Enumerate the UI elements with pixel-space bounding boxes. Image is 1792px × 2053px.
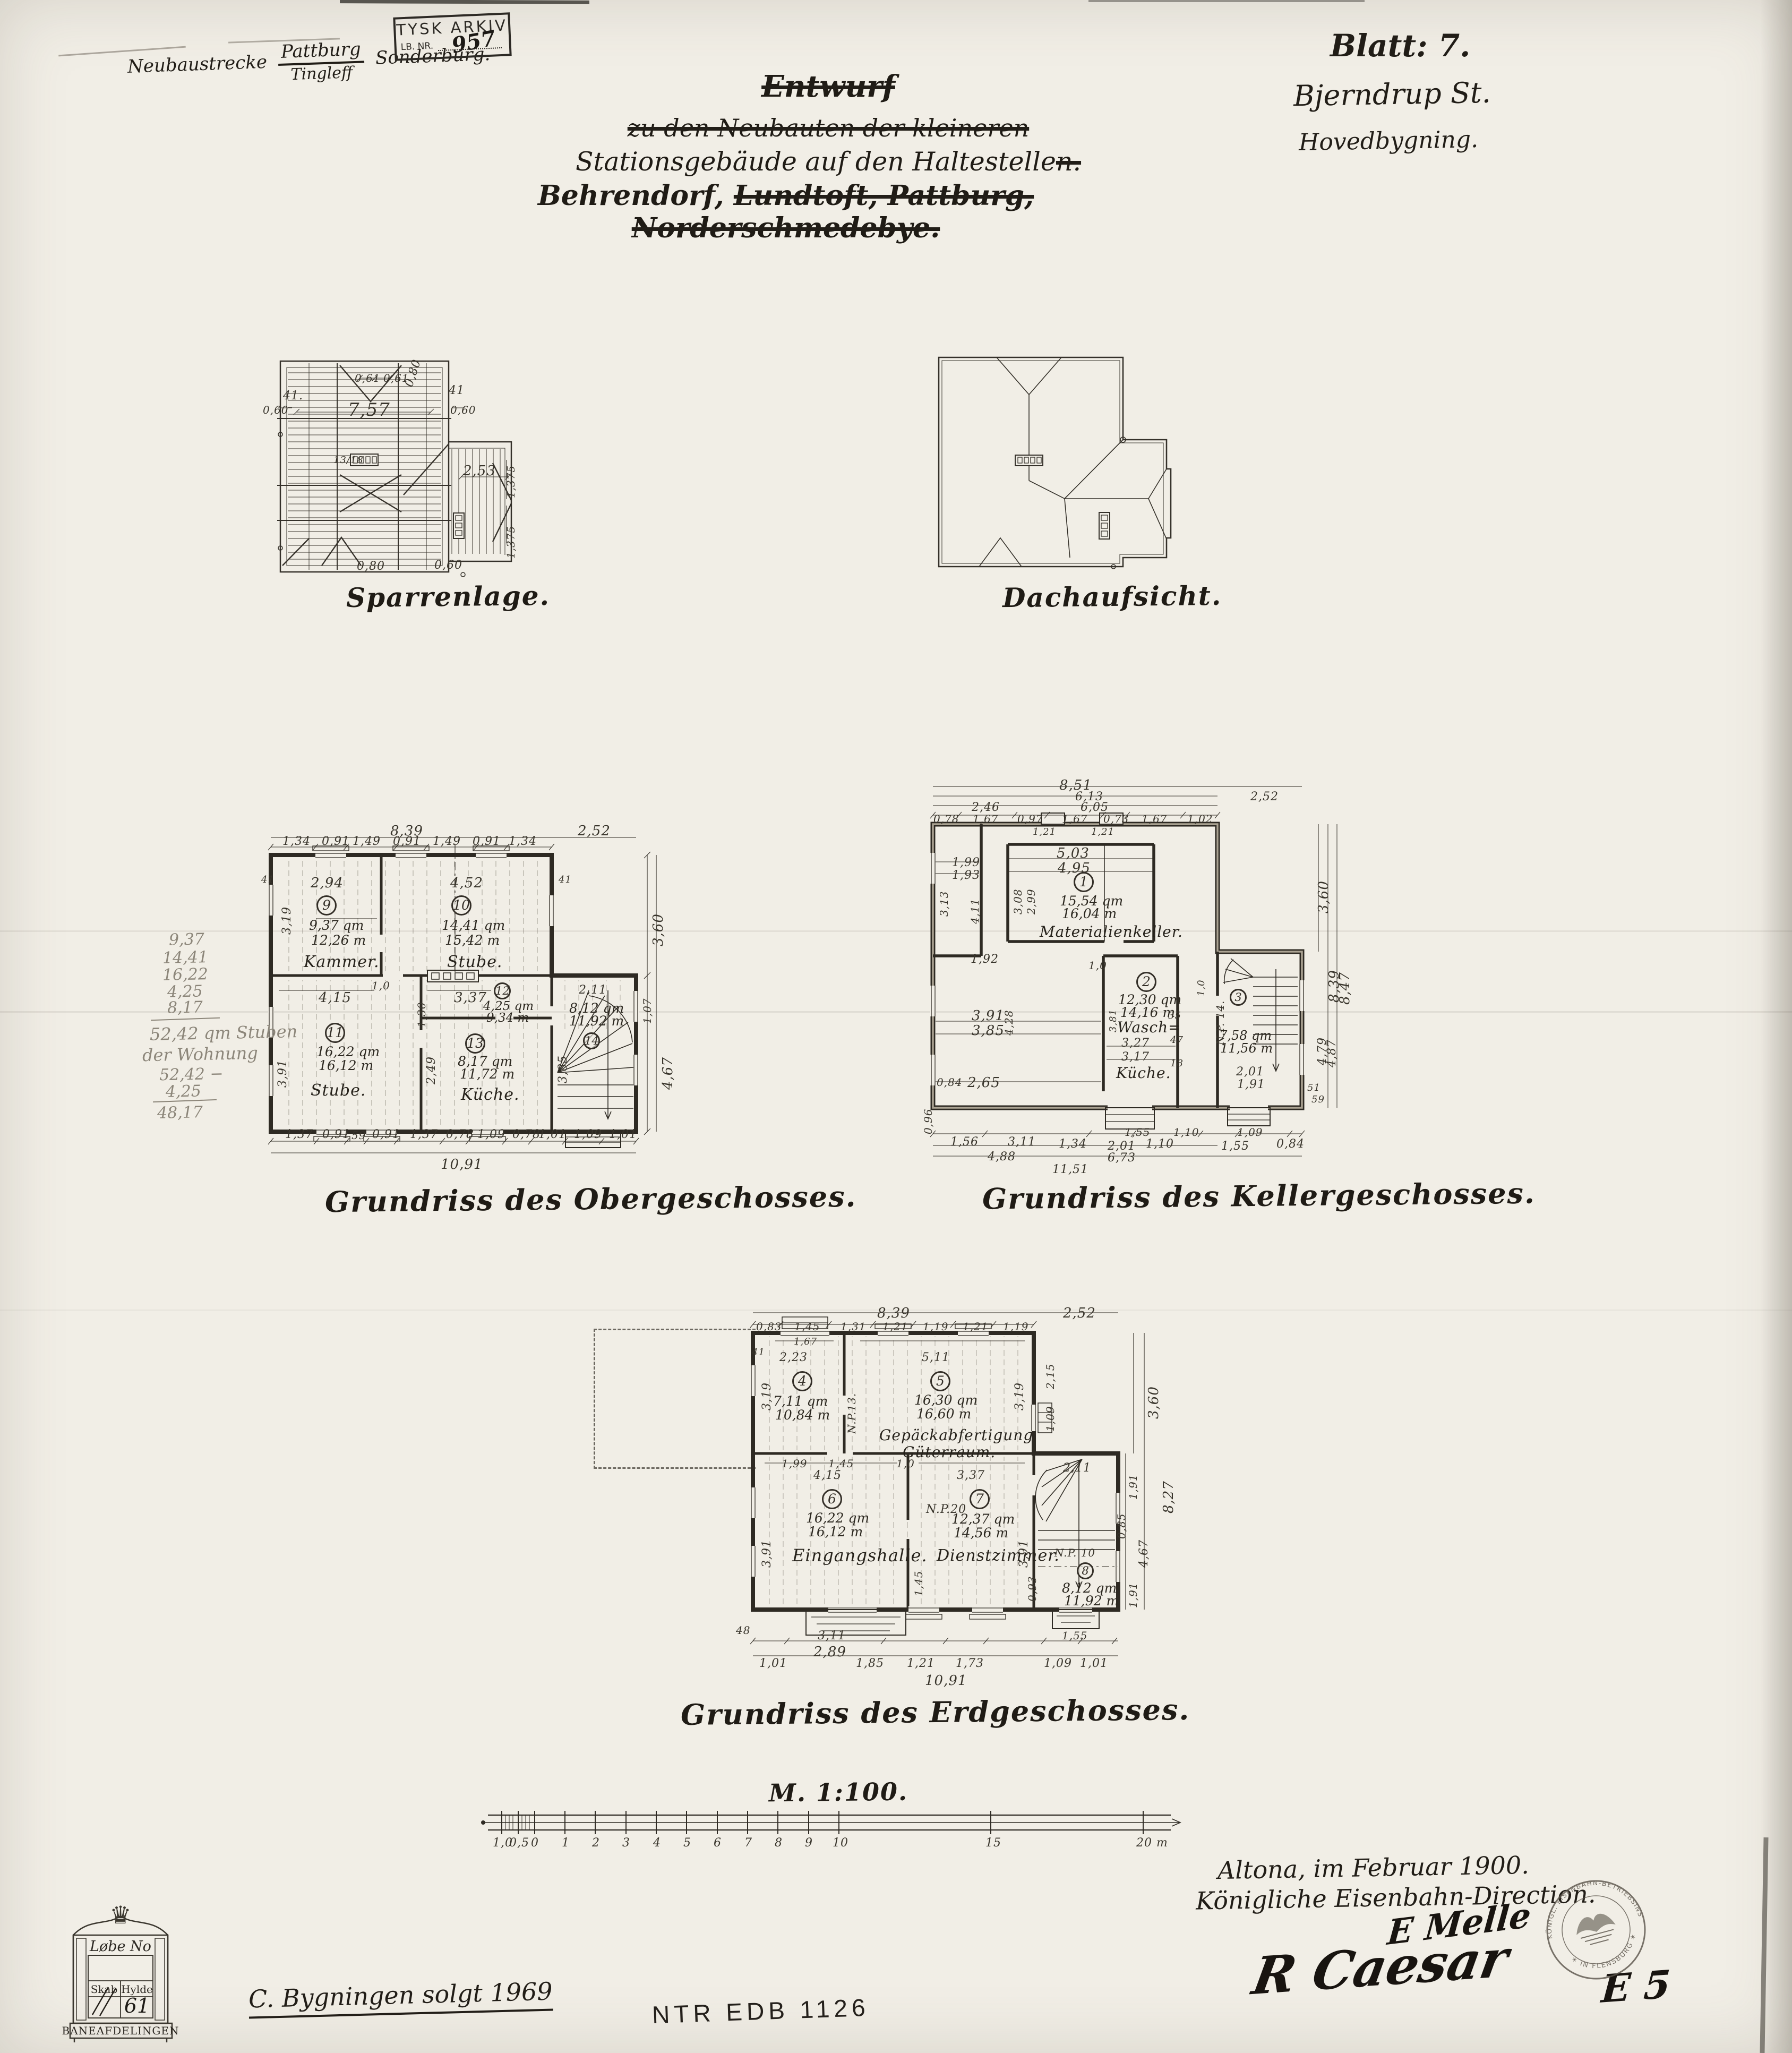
dim-label: 10,91 <box>925 1673 967 1689</box>
room-number: 2 <box>1136 972 1156 992</box>
room-area: 7,11 qm <box>773 1393 828 1409</box>
room-perimeter: 11,92 m <box>1064 1593 1119 1609</box>
dim-label: 2,01 <box>1236 1065 1264 1079</box>
room-name: Küche. <box>461 1085 520 1104</box>
dim-label: 3,81 <box>1108 1009 1119 1032</box>
room-perimeter: 16,60 m <box>916 1406 971 1422</box>
dim-label: 41 <box>559 874 572 885</box>
dim-label: 59 <box>1311 1094 1325 1105</box>
dim-label: 1,09 <box>574 1128 602 1141</box>
dim-label: 1,91 <box>1127 1474 1139 1500</box>
scale-tick: 20 m <box>1136 1836 1168 1850</box>
dim-label: 51 <box>1307 1082 1321 1093</box>
dim-label: 1,10 <box>1146 1137 1174 1151</box>
room-number: 12 <box>494 982 511 999</box>
room-name: Materialienkeller. <box>1040 923 1183 940</box>
dim-label: 0,78 <box>512 1128 541 1141</box>
stamp-text-bottom: ✶ IN FLENSBURG ✶ <box>1566 1930 1645 1978</box>
dim-label: 1,01 <box>538 1128 567 1141</box>
dim-label: 41 <box>449 384 465 397</box>
archive-stamp: TYSK ARKIV LB. NR. 957 <box>393 12 511 61</box>
room-area: 16,22 qm <box>806 1510 869 1526</box>
room-name: Stube. <box>447 953 502 971</box>
route-fraction: Pattburg Tingleff <box>277 38 365 84</box>
room-number: 14 <box>583 1032 600 1049</box>
dim-label: 3,19 <box>1013 1382 1026 1410</box>
svg-text:KÖNIGL. EISENBAHN-BETRIEBSINSP: KÖNIGL. EISENBAHN-BETRIEBSINSPECTION <box>1528 1860 1645 1944</box>
room-name: Stube. <box>311 1081 366 1100</box>
dim-label: 0,80 <box>357 560 385 573</box>
dim-label: 1,09 <box>477 1128 505 1141</box>
dim-label: 1,01 <box>609 1128 637 1141</box>
dim-label: 4,11 <box>968 898 981 924</box>
scale-caption: M. 1:100. <box>769 1777 908 1808</box>
dim-label: 3,91 <box>972 1008 1005 1024</box>
dim-label: 1,56 <box>950 1135 979 1149</box>
title-line-3: Stationsgebäude auf den Haltestellen. <box>563 147 1094 177</box>
pencil-note: 52,42 qm Stuben <box>150 1021 298 1045</box>
dim-label: 1,55 <box>1221 1140 1249 1153</box>
pencil-rule <box>151 1017 220 1021</box>
dim-label: 0,91 <box>372 1128 400 1141</box>
dim-label: 1,0 <box>896 1457 915 1470</box>
room-perimeter: 14,16 m <box>1120 1005 1175 1020</box>
room-perimeter: 15,42 m <box>445 933 500 948</box>
dim-label: 4,87 <box>1325 1039 1339 1067</box>
dim-label: 6,73 <box>1108 1151 1136 1165</box>
scale-tick: 8 <box>775 1836 783 1850</box>
caption-dachaufsicht: Dachaufsicht. <box>1002 580 1222 613</box>
dim-label: 2,94 <box>311 875 344 891</box>
room-perimeter: 9,34 m <box>486 1011 529 1025</box>
dim-label: 2,52 <box>1063 1305 1096 1321</box>
room-number: 3 <box>1230 989 1247 1006</box>
dim-label: 0,78 <box>446 1128 474 1141</box>
room-number: 9 <box>316 895 337 916</box>
dim-label: 2,15 <box>1044 1363 1057 1389</box>
dim-label: 1,34 <box>1059 1137 1087 1151</box>
dim-label: 59 <box>351 1129 366 1142</box>
scale-tick: 10 <box>833 1836 848 1850</box>
title-neubauten: zu den Neubauten der kleineren <box>628 114 1029 142</box>
room-number: 8 <box>1077 1562 1094 1579</box>
cabinet-footer: BANEAFDELINGEN <box>62 2024 179 2037</box>
room-area: 9,37 qm <box>309 918 364 933</box>
dim-label: 3,60 <box>650 913 666 946</box>
dim-label: 0,83 <box>756 1320 782 1333</box>
dim-label: 1,21 <box>882 1320 908 1333</box>
dim-label: 5,11 <box>922 1351 950 1364</box>
dim-label: 3,37 <box>454 990 487 1006</box>
dim-label: 2,65 <box>967 1075 1000 1091</box>
np-label: N.P.13. <box>845 1393 858 1434</box>
dim-label: 1,37 <box>410 1128 438 1141</box>
dim-label: 1,45 <box>828 1457 854 1470</box>
dim-label: 1,45 <box>912 1570 925 1596</box>
dim-label: 4,15 <box>813 1469 842 1482</box>
scan-edge-top2 <box>1088 0 1365 2</box>
title-entwurf: Entwurf <box>761 69 895 104</box>
dim-label: 1,01 <box>1080 1657 1108 1670</box>
dim-label: 1,67 <box>973 812 999 825</box>
dim-label: 1,21 <box>907 1657 935 1670</box>
dachaufsicht-drawing <box>937 353 1173 571</box>
room-number: 10 <box>451 895 471 916</box>
dim-label: 3,11 <box>818 1629 846 1643</box>
route-over: Pattburg <box>277 38 364 66</box>
dim-label: 1,34 <box>282 835 311 848</box>
room-number: 5 <box>930 1371 950 1391</box>
dim-label: 0,60 <box>263 404 289 416</box>
dim-label: 13/18 <box>333 455 364 466</box>
roof-lines <box>979 357 1167 567</box>
cabinet-header: Løbe No <box>89 1938 151 1955</box>
dim-label: 4,15 <box>319 990 351 1006</box>
title-line-4: Behrendorf, Lundtoft, Pattburg, Nordersc… <box>451 179 1120 244</box>
caption-kellergeschoss: Grundriss des Kellergeschosses. <box>982 1176 1536 1216</box>
cabinet-stamp: ♛ Løbe No Skab Hylde 61 BANEAFDELINGEN <box>69 1900 175 2045</box>
dim-label: 1,67 <box>1062 812 1088 825</box>
dim-label: 3,17 <box>1121 1050 1150 1064</box>
dim-label: 18 <box>1170 1058 1184 1069</box>
dim-label: 1,0 <box>1088 959 1107 972</box>
note-sold: C. Bygningen solgt 1969 <box>248 1977 553 2014</box>
dim-label: 41. <box>283 389 303 403</box>
pencil-note: 9,37 <box>169 930 205 949</box>
dim-label: 1,91 <box>1237 1078 1265 1091</box>
dim-label: 1,45 <box>794 1320 820 1333</box>
dim-label: 10,91 <box>441 1157 483 1173</box>
scale-tick: 3 <box>622 1836 630 1850</box>
scale-tick: 6 <box>714 1836 722 1850</box>
dim-label: 1,99 <box>782 1457 808 1470</box>
pencil-note: der Wohnung <box>142 1043 259 1066</box>
dim-label: 3,19 <box>760 1382 774 1410</box>
dim-label: 4,28 <box>1002 1010 1015 1036</box>
dim-label: 1,09 <box>1044 1657 1072 1670</box>
room-number: 6 <box>822 1489 842 1509</box>
route-prefix: Neubaustrecke <box>127 52 267 78</box>
room-perimeter: 16,04 m <box>1062 906 1117 921</box>
dim-label: 1,19 <box>1003 1320 1029 1333</box>
dim-label: 8,39 <box>877 1305 910 1321</box>
dim-label: 1,10 <box>1173 1126 1199 1139</box>
dim-label: 4,67 <box>1137 1539 1151 1568</box>
room-name: Küche. <box>1116 1064 1171 1082</box>
room-name: Gepäckabfertigung <box>879 1426 1033 1444</box>
room-area: 16,30 qm <box>914 1392 978 1408</box>
room-name: Kammer. <box>304 953 380 971</box>
signature-caesar: R Caesar <box>1248 1928 1513 2006</box>
dim-label: 0,91 <box>473 835 501 848</box>
scale-tick: 0,5 <box>509 1836 529 1850</box>
dim-label: 0,61 <box>355 372 381 384</box>
dim-label: 1,02 <box>1187 812 1213 825</box>
dim-label: 0,91 <box>393 835 421 848</box>
scale-tick: 2 <box>592 1836 600 1850</box>
title-behrendorf: Behrendorf, <box>538 179 724 212</box>
dim-label: 0,84 <box>937 1076 963 1089</box>
dim-label: 0,85 <box>1115 1513 1128 1539</box>
dim-label: 8,47 <box>1337 972 1353 1005</box>
dim-label: 1,21 <box>963 1320 989 1333</box>
dim-label: 4,52 <box>450 875 483 891</box>
dim-label: 1,73 <box>956 1657 984 1670</box>
room-perimeter: 12,26 m <box>311 933 366 948</box>
stamp-text-top: KÖNIGL. EISENBAHN-BETRIEBSINSPECTION <box>1528 1860 1645 1944</box>
dim-label: 0,84 <box>1276 1137 1305 1151</box>
scale-tick: 9 <box>805 1836 813 1850</box>
dim-label: 1,93 <box>952 869 980 882</box>
scale-tick: 5 <box>683 1836 691 1850</box>
dim-label: 4,88 <box>988 1150 1016 1164</box>
dim-label: 2,53 <box>463 463 496 479</box>
dim-label: 4,67 <box>660 1057 676 1090</box>
dim-label: 3,19 <box>280 906 294 935</box>
dim-label: 2,52 <box>1250 790 1279 803</box>
dim-label: 48 <box>736 1624 750 1637</box>
room-perimeter: 16,12 m <box>319 1058 373 1073</box>
cabinet-skab: Skab <box>91 1983 118 1996</box>
dim-label: 2,89 <box>813 1644 846 1660</box>
dim-label: 0,91 <box>322 1128 350 1141</box>
dim-label: 0,93 <box>1026 1576 1039 1602</box>
scale-tick: 7 <box>744 1836 752 1850</box>
sheet-building: Hovedbygning. <box>1299 126 1479 156</box>
dim-label: 1,0 <box>1196 979 1207 996</box>
dim-label: 1,375 <box>504 465 517 498</box>
dim-label: 0,60 <box>450 404 476 416</box>
room-area: 14,41 qm <box>442 918 505 933</box>
dim-label: 3,13 <box>938 891 950 917</box>
dim-label: 3,85 <box>556 1055 570 1083</box>
archive-stamp-label: LB. NR. <box>400 41 433 53</box>
dim-label: 2,11 <box>579 983 607 997</box>
scale-tick: 1 <box>562 1836 570 1850</box>
dim-label: 1,55 <box>1062 1629 1088 1642</box>
room-number: 4 <box>792 1371 812 1391</box>
scale-tick: 4 <box>653 1836 661 1850</box>
room-name: Güterraum. <box>903 1443 996 1461</box>
scale-tick: 0 <box>531 1836 539 1850</box>
caption-erdgeschoss: Grundriss des Erdgeschosses. <box>681 1692 1190 1732</box>
cabinet-value: 61 <box>124 1994 150 2017</box>
dim-label: 1,21 <box>1033 826 1056 837</box>
dim-label: 1,09 <box>1237 1126 1263 1139</box>
room-area: 16,22 qm <box>316 1044 380 1059</box>
caption-sparrenlage: Sparrenlage. <box>346 580 550 613</box>
dim-label: 0,96 <box>922 1108 934 1134</box>
title-stationsgebaeude: Stationsgebäude auf den Haltestelle <box>576 147 1056 177</box>
sheet-station: Bjerndrup St. <box>1293 76 1491 113</box>
np-label: N.P. 10 <box>1054 1546 1095 1559</box>
dim-label: 1,375 <box>504 526 517 559</box>
crown-icon: ♛ <box>109 1901 131 1929</box>
dim-label: 1,37 <box>285 1128 313 1141</box>
dim-label: 3,60 <box>1316 880 1332 913</box>
dim-label: 11,51 <box>1052 1163 1088 1176</box>
dim-label: 0,91 <box>322 835 350 848</box>
dim-label: 1,19 <box>923 1320 949 1333</box>
dim-label: 1,49 <box>353 835 381 848</box>
dim-label: 1,99 <box>952 856 980 869</box>
dim-label: 3,08 <box>1011 888 1024 914</box>
pencil-note: 8,17 <box>167 998 203 1017</box>
room-number: 13 <box>465 1033 485 1054</box>
dim-label: 2,52 <box>578 823 611 839</box>
room-name: Dienstzimmer. <box>937 1546 1060 1565</box>
dim-label: 3,91 <box>276 1059 289 1088</box>
dim-label: 0,73 <box>1103 812 1129 825</box>
dim-label: 41 <box>752 1347 765 1358</box>
dim-label: 7,57 <box>348 399 390 421</box>
dim-label: 1,01 <box>759 1657 787 1670</box>
paper-edge-right <box>1760 0 1792 2053</box>
dim-label: 3,91 <box>1017 1539 1031 1568</box>
paper-crease-right <box>1760 1837 1768 2053</box>
dim-label: 1,34 <box>509 835 537 848</box>
dim-label: 2,11 <box>1063 1461 1091 1475</box>
dim-label: 8,27 <box>1161 1481 1177 1513</box>
dim-label: 1,67 <box>1142 812 1168 825</box>
dim-label: 3,27 <box>1121 1037 1150 1050</box>
room-number: 7 <box>970 1489 990 1509</box>
room-name: Eingangshalle. <box>792 1545 928 1566</box>
room-number: 11 <box>325 1023 345 1043</box>
room-perimeter: 11,72 m <box>460 1066 515 1082</box>
room-perimeter: 16,12 m <box>808 1524 863 1539</box>
pencil-note: 4,25 <box>166 1082 202 1101</box>
dim-label: 1,91 <box>1127 1582 1139 1608</box>
footer-place-date: Altona, im Februar 1900. <box>1217 1851 1530 1885</box>
dim-label: 1,85 <box>856 1657 884 1670</box>
dim-label: 3,91 <box>760 1539 774 1568</box>
dim-label: 3,85 <box>972 1023 1005 1039</box>
title-block: Entwurf zu den Neubauten der kleineren S… <box>563 69 1094 177</box>
dim-label: 47 <box>1170 1034 1184 1046</box>
dim-label: 2,99 <box>1025 888 1038 914</box>
pencil-note: 52,42 − <box>159 1065 224 1085</box>
dim-label: 1,21 <box>1091 826 1114 837</box>
dim-label: 0,78 <box>933 812 959 825</box>
note-sold-text: C. Bygningen solgt 1969 <box>248 1977 553 2019</box>
room-perimeter: 11,92 m <box>569 1013 624 1029</box>
dim-label: 3,37 <box>957 1469 985 1482</box>
scale-tick: 15 <box>985 1836 1001 1850</box>
dim-label: 1,0 <box>372 979 390 992</box>
dim-label: 1,09 <box>1044 1406 1057 1432</box>
dim-label: 2,23 <box>779 1351 808 1364</box>
dim-label: 35 <box>1168 1010 1181 1021</box>
title-line-2: zu den Neubauten der kleineren <box>563 114 1094 142</box>
svg-text:✶ IN FLENSBURG ✶: ✶ IN FLENSBURG ✶ <box>1566 1930 1645 1978</box>
dim-label: 1,55 <box>1125 1126 1151 1139</box>
route-under: Tingleff <box>278 63 365 84</box>
eagle-icon <box>1573 1910 1616 1937</box>
chimney <box>1015 455 1043 466</box>
room-perimeter: 11,56 m <box>1220 1041 1273 1056</box>
dim-label: 3,60 <box>1146 1386 1162 1419</box>
note-ntr: NTR EDB 1126 <box>651 1993 870 2029</box>
caption-obergeschoss: Grundriss des Obergeschosses. <box>325 1179 857 1219</box>
dim-label: 1,07 <box>641 998 654 1024</box>
title-line-1: Entwurf <box>563 69 1094 104</box>
title-stationsgebaeude-struck: n. <box>1056 147 1081 177</box>
chimney <box>427 970 478 982</box>
dim-label: 1,30 <box>415 1002 428 1028</box>
dim-label: 1,31 <box>841 1320 867 1333</box>
dim-label: 1,92 <box>971 953 999 966</box>
dim-label: 1,49 <box>433 835 461 848</box>
dim-label: 3,11 <box>1008 1135 1036 1149</box>
room-perimeter: 10,84 m <box>775 1407 830 1423</box>
room-area: 12,37 qm <box>951 1511 1015 1527</box>
drawing-sheet: Neubaustrecke Pattburg Tingleff Sonderbu… <box>0 0 1792 2053</box>
dim-label: 0,97 <box>1017 812 1043 825</box>
dim-label: 0,60 <box>434 559 462 572</box>
dim-label: 2,49 <box>425 1056 438 1084</box>
dim-label: 41 <box>261 874 275 885</box>
room-number: 1 <box>1074 872 1094 892</box>
room-perimeter: 14,56 m <box>954 1525 1008 1541</box>
dim-label: 1,67 <box>794 1336 817 1347</box>
platform-outline <box>594 1329 756 1469</box>
pencil-note: 48,17 <box>157 1103 203 1123</box>
chimney <box>1099 512 1110 539</box>
chimney <box>453 513 464 538</box>
sheet-number: Blatt: 7. <box>1330 28 1470 64</box>
scan-edge-top <box>340 0 589 4</box>
dim-label: 5,03 <box>1057 845 1090 861</box>
